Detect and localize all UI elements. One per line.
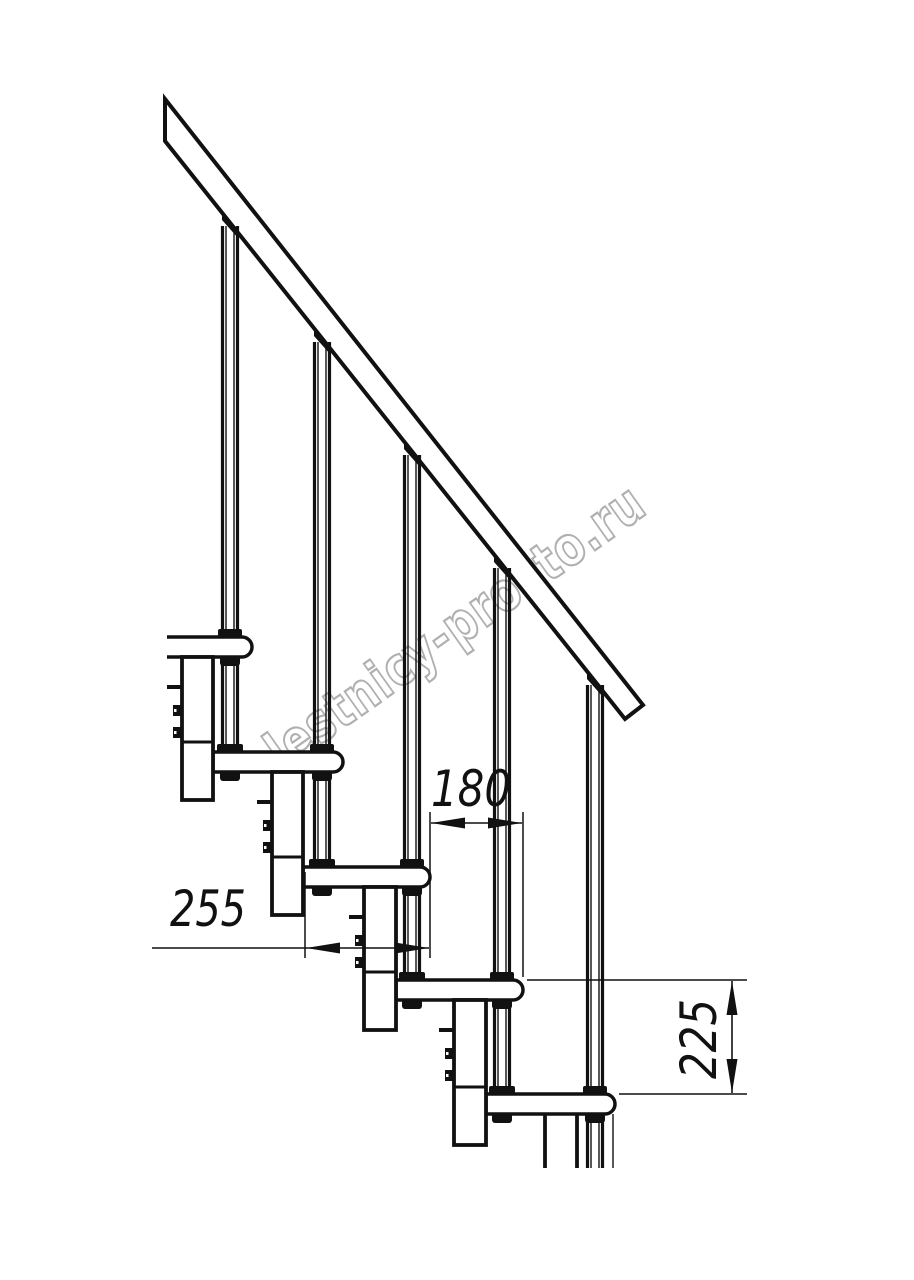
dimension-run-label: 180 [431, 760, 511, 818]
drawing-canvas: lestnicy-prosto.ru 180 255 225 [0, 0, 914, 1280]
staircase-technical-drawing: lestnicy-prosto.ru 180 255 225 [0, 0, 914, 1280]
dimension-tread-depth-label: 255 [170, 880, 246, 938]
dimension-rise-label: 225 [670, 999, 728, 1079]
